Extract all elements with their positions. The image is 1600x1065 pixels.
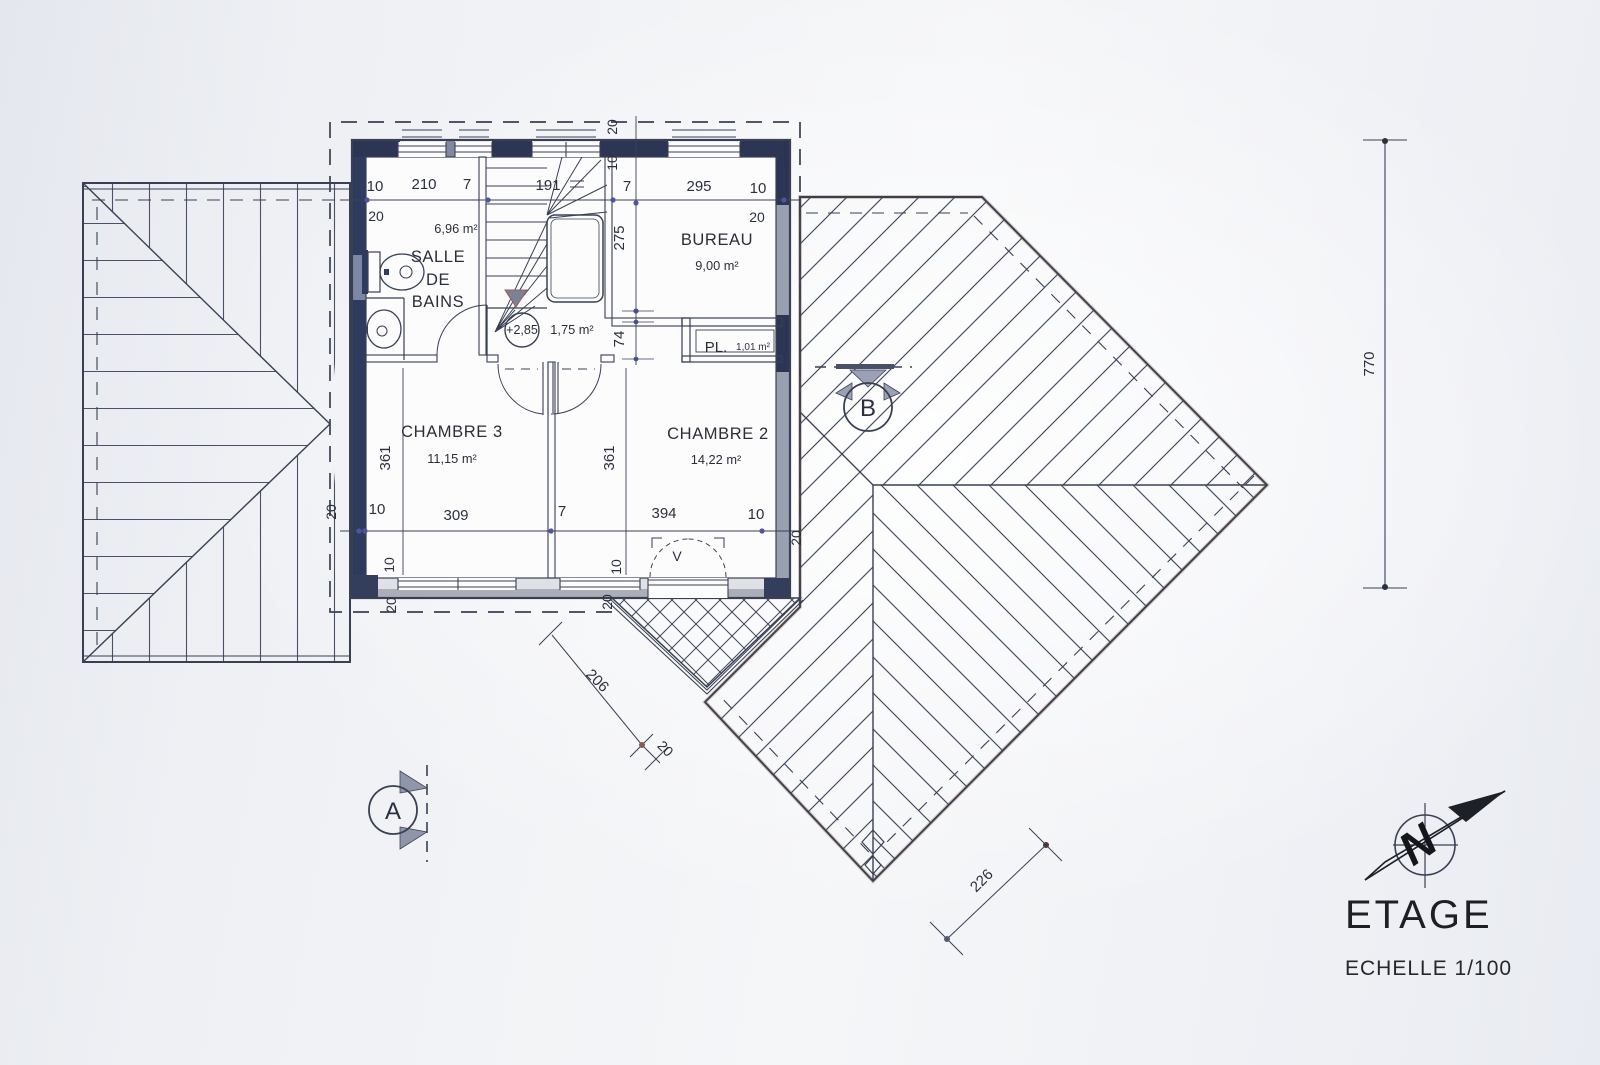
dim-bot-7: 7 [558,503,566,520]
dim-226: 226 [930,828,1062,955]
north-letter: N [1389,813,1447,875]
chambre2-area: 14,22 m² [691,452,742,467]
dim-361-mid: 361 [601,445,618,470]
dim-top-7b: 7 [623,178,631,195]
french-door-opening [648,578,728,598]
bathroom-label-2: DE [426,271,450,289]
section-b-letter: B [860,395,876,422]
dim-bot-10-rot-m: 10 [608,559,624,575]
bathroom-label-3: BAINS [412,293,465,311]
dim-206-label: 206 [582,666,612,696]
dim-bot-20-rot-m: 20 [599,594,615,610]
dim-74: 74 [611,331,628,348]
window-tag-v: V [672,548,682,564]
hall-area: 1,75 m² [550,322,594,337]
dim-20-diag-label: 20 [654,737,676,759]
bureau-area: 9,00 m² [695,258,739,273]
dim-bot-10r: 10 [748,506,765,523]
dim-361-left: 361 [377,445,394,470]
dim-bot-309: 309 [443,507,468,524]
level-marker-value: +2,85 [506,323,538,337]
dim-top-295: 295 [686,178,711,195]
placard-label: PL. [705,339,728,356]
dim-top-20l: 20 [368,208,384,224]
dim-bot-394: 394 [651,505,676,522]
dim-top-10l: 10 [367,178,384,195]
chambre3-area: 11,15 m² [427,451,477,466]
drawing-title: ETAGE [1345,893,1493,937]
window-sills [402,130,736,137]
dim-226-label: 226 [967,866,997,896]
dim-top-mid-20: 20 [604,119,620,135]
dim-top-10r: 10 [750,180,767,197]
dim-left-20: 20 [323,504,339,520]
dim-bot-10-rot-l: 10 [381,557,397,573]
dim-right-20: 20 [788,530,804,546]
chambre3-label: CHAMBRE 3 [401,423,503,441]
dim-770: 770 [1361,138,1407,590]
section-a-letter: A [385,798,401,825]
floor-plan-canvas: PL. 1,01 m² [0,0,1600,1065]
west-wall [352,140,366,578]
dim-top-210: 210 [411,176,436,193]
left-roof [83,183,350,662]
section-marker-a: A [369,765,427,862]
bureau-label: BUREAU [681,231,753,249]
bathroom-label-1: SALLE [411,248,465,266]
dim-275: 275 [611,225,628,250]
chambre2-label: CHAMBRE 2 [667,425,769,443]
dim-770-label: 770 [1361,351,1378,376]
placard-area: 1,01 m² [736,342,771,353]
north-wall-pier [352,140,400,157]
dim-top-7a: 7 [463,176,471,193]
dim-top-20r: 20 [749,209,765,225]
dim-top-191: 191 [535,177,560,194]
dim-bot-10l: 10 [369,501,386,518]
dim-206: 206 20 [539,622,677,770]
dim-top-mid-10: 10 [604,155,620,171]
drawing-scale: ECHELLE 1/100 [1345,957,1512,980]
north-compass: N [1365,791,1505,888]
dim-bot-20-rot-l: 20 [383,597,399,613]
bathroom-area: 6,96 m² [434,221,478,236]
